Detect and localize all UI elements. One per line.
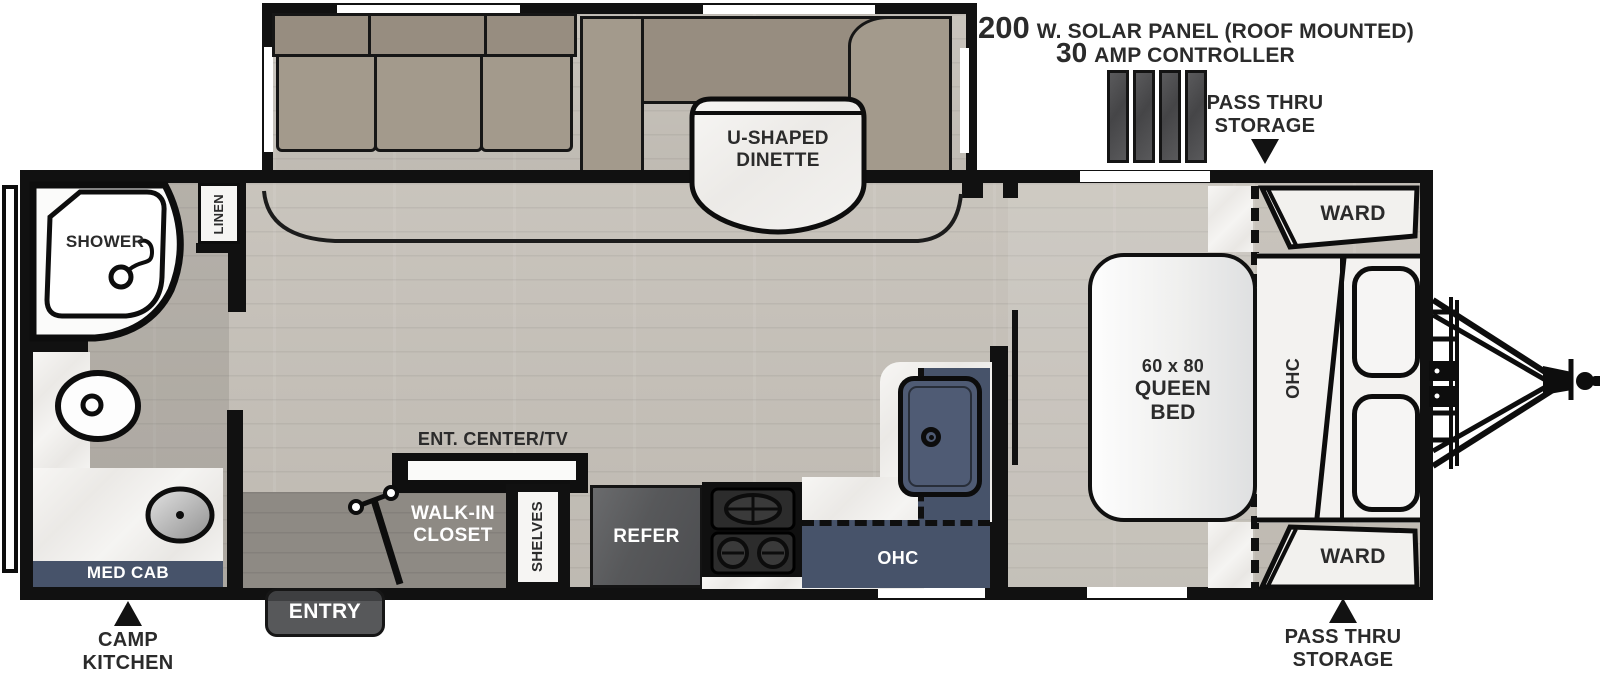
- nightstand-marble-bottom: [1208, 522, 1253, 588]
- controller-amp-text: AMP CONTROLLER: [1094, 44, 1295, 68]
- kitchen-wall-panel: [1012, 310, 1018, 465]
- faucet-dot: [929, 435, 934, 440]
- window: [703, 5, 875, 14]
- pass-thru-bottom-arrow-icon: [1329, 598, 1357, 623]
- sofa-back-cushion: [484, 13, 577, 57]
- walk-in-closet-label: WALK-IN CLOSET: [393, 503, 513, 547]
- entry-label: ENTRY: [265, 588, 385, 637]
- solar-cell: [1133, 70, 1155, 163]
- pass-thru-top-arrow-icon: [1251, 139, 1279, 164]
- shelves-label: SHELVES: [516, 490, 560, 584]
- sofa-seat-cushion: [480, 54, 573, 152]
- shower-label: SHOWER: [50, 232, 160, 252]
- window: [1080, 171, 1210, 182]
- med-cab-label: MED CAB: [33, 563, 223, 583]
- ent-center-tv: [408, 461, 576, 480]
- ohc-kitchen-label: OHC: [858, 548, 938, 569]
- solar-cell: [1107, 70, 1129, 163]
- sofa-seat-cushion: [374, 54, 483, 152]
- wall-stub: [962, 183, 983, 198]
- linen-label: LINEN: [199, 186, 239, 242]
- ent-center-label: ENT. CENTER/TV: [398, 429, 588, 450]
- window: [960, 48, 969, 153]
- floorplan-canvas: 200 W. SOLAR PANEL (ROOF MOUNTED) 30 AMP…: [0, 0, 1600, 687]
- camp-kitchen-exterior-door: [2, 185, 18, 573]
- controller-amp-value: 30: [1056, 37, 1087, 69]
- solar-wattage-value: 200: [978, 10, 1030, 46]
- bed-head-cushion: [1352, 394, 1420, 512]
- queen-bed-label: 60 x 80 QUEEN BED: [1098, 356, 1248, 425]
- hitch-coupler-icon: [1429, 359, 1600, 407]
- camp-kitchen-label: CAMP KITCHEN: [48, 629, 208, 675]
- sofa-back-cushion: [272, 13, 371, 57]
- counter-strip: [702, 577, 802, 589]
- bathroom-wall-lower: [227, 410, 243, 588]
- window: [264, 47, 273, 152]
- camp-kitchen-arrow-icon: [114, 601, 142, 626]
- pass-thru-storage-top-label: PASS THRU STORAGE: [1185, 92, 1345, 138]
- sofa-seat-cushion: [276, 54, 377, 152]
- kitchen-wall: [990, 346, 1008, 588]
- shower-wall: [28, 330, 88, 352]
- ward-bottom-label: WARD: [1293, 545, 1413, 569]
- sofa-back-cushion: [368, 13, 487, 57]
- solar-cell: [1159, 70, 1181, 163]
- nightstand-marble-top: [1208, 186, 1253, 252]
- solar-controller-annotation: 30 AMP CONTROLLER: [1056, 37, 1295, 69]
- kitchen-sink: [898, 376, 982, 497]
- window: [1087, 587, 1187, 598]
- refer-label: REFER: [590, 485, 703, 588]
- bed-head-cushion: [1352, 266, 1420, 378]
- wall-stub: [1003, 183, 1018, 198]
- toilet-counter-marble: [33, 352, 90, 468]
- pass-thru-storage-bottom-label: PASS THRU STORAGE: [1263, 626, 1423, 672]
- linen-wall: [196, 243, 242, 253]
- bath-sink-counter: [33, 468, 223, 562]
- dinette-label: U-SHAPED DINETTE: [692, 128, 864, 172]
- stove: [702, 482, 802, 580]
- hitch-icon: [1433, 297, 1556, 469]
- ward-top-label: WARD: [1293, 202, 1413, 226]
- ohc-bedroom-label: OHC: [1272, 346, 1314, 410]
